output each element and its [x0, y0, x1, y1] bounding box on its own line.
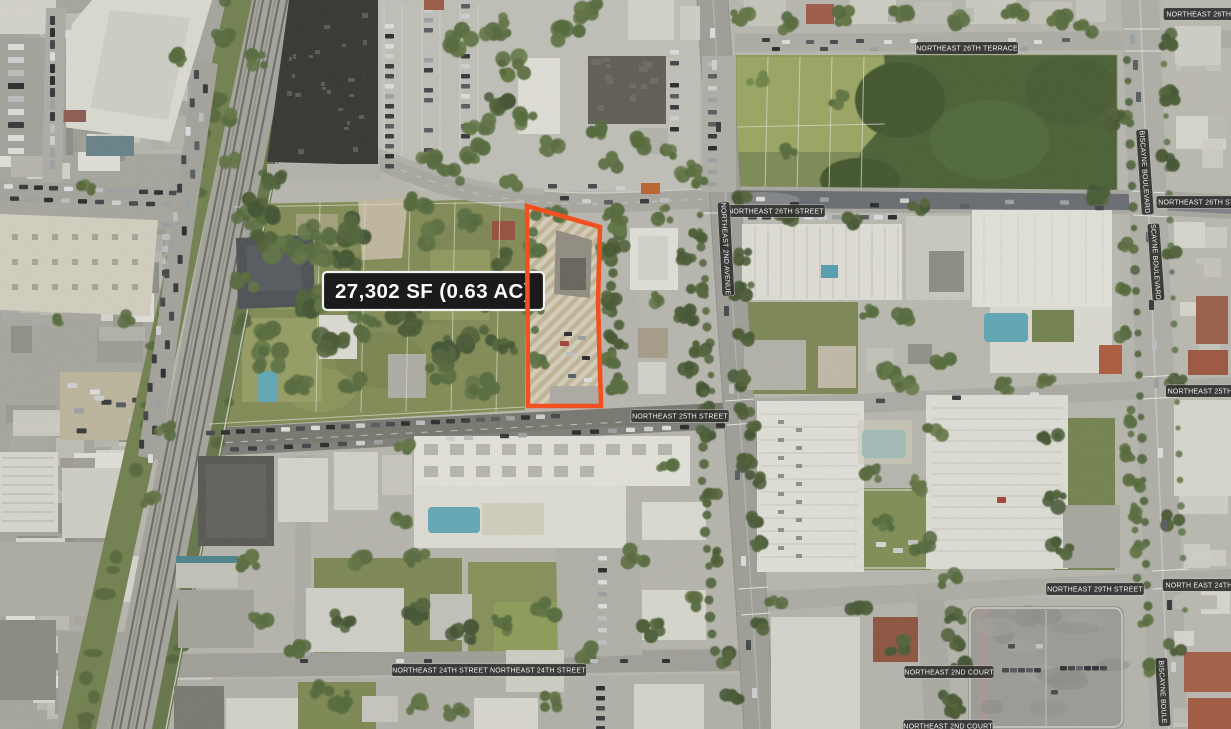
svg-text:NORTHEAST 24TH STREET NORTHEA: NORTHEAST 24TH STREET NORTHEAST 24TH STR… [392, 668, 586, 675]
svg-text:NORTHEAST 26TH STREET: NORTHEAST 26TH STREET [728, 209, 824, 216]
svg-text:NORTHEAST 25TH: NORTHEAST 25TH [1168, 389, 1231, 396]
svg-text:NORTHEAST 26TH STR: NORTHEAST 26TH STR [1158, 200, 1231, 207]
svg-text:NORTHEAST 29TH STREET: NORTHEAST 29TH STREET [1047, 587, 1143, 594]
svg-text:27,302 SF (0.63 AC): 27,302 SF (0.63 AC) [335, 280, 531, 303]
svg-text:NORTHEAST 25TH STREET: NORTHEAST 25TH STREET [632, 414, 728, 421]
svg-text:NORTHEAST 26TH TERRACE: NORTHEAST 26TH TERRACE [916, 46, 1018, 53]
svg-text:NORTHEAST 2ND COURT: NORTHEAST 2ND COURT [904, 670, 994, 677]
svg-text:NORTHEAST 26TH T: NORTHEAST 26TH T [1166, 12, 1231, 19]
svg-text:NORTHEAST 2ND COURT: NORTHEAST 2ND COURT [903, 724, 993, 729]
svg-text:NORTH EAST 24TH: NORTH EAST 24TH [1166, 583, 1231, 590]
